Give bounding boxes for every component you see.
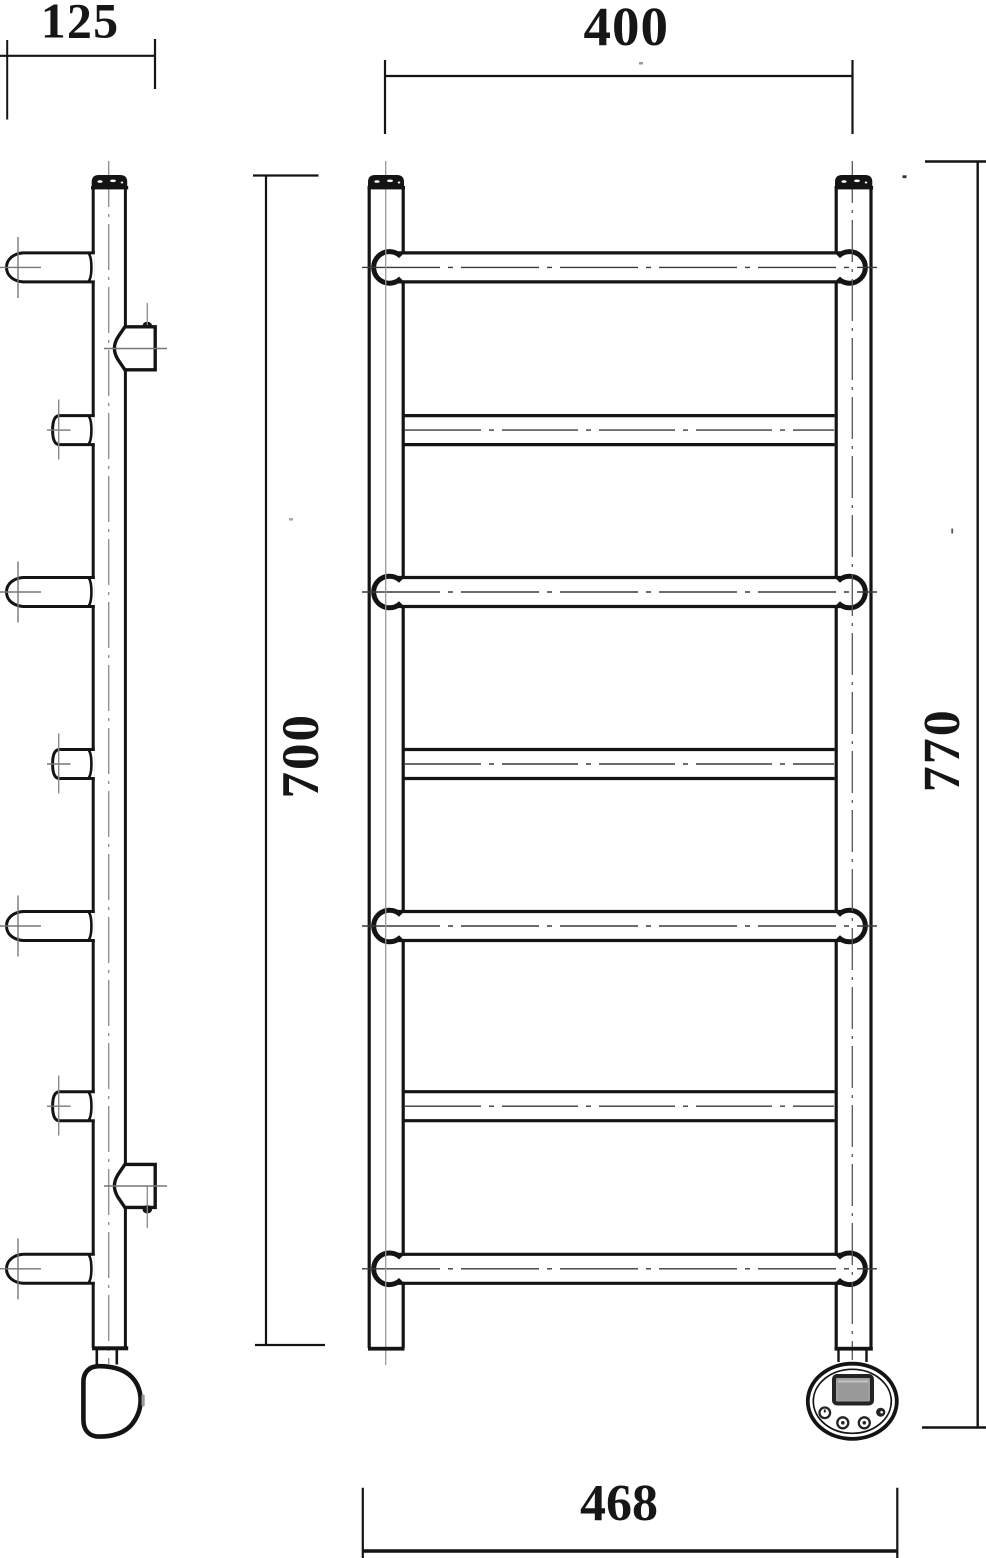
svg-text:700: 700 (272, 713, 330, 799)
svg-text:770: 770 (914, 708, 971, 792)
svg-text:468: 468 (580, 1475, 658, 1532)
svg-text:400: 400 (584, 0, 670, 57)
svg-text:125: 125 (41, 0, 120, 49)
